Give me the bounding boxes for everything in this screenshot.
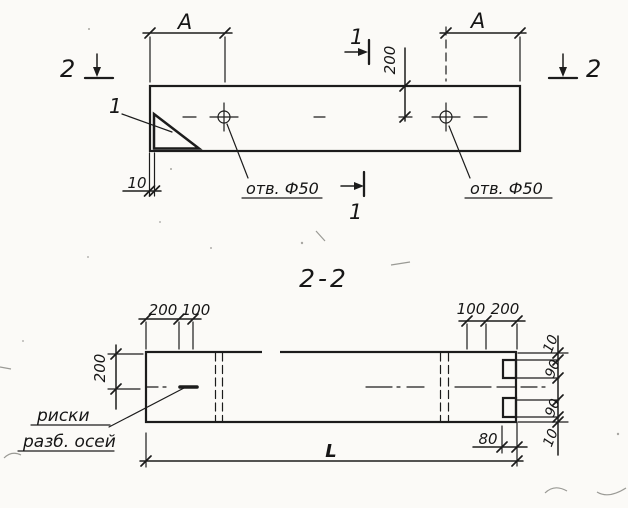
paper-speck [617,433,619,435]
dim-a-left: A [143,10,232,82]
dim-top-left-200-label: 200 [149,301,178,319]
section-mark-1-top: 1 [345,25,369,64]
paper-speck [159,221,161,223]
paper-speck [301,242,303,244]
dim-top-right-200-label: 200 [491,300,520,318]
paper-speck [170,168,172,170]
paper-speck [22,340,24,342]
section-2-right-label: 2 [586,55,601,83]
dim-top-left: 200 100 [139,301,210,349]
section-arrow-head [559,67,567,77]
hole-note-left-label: отв. Ф50 [246,179,319,198]
section-mark-2-right: 2 [549,54,601,83]
plan-view: 1 A A [60,9,601,224]
plan-beam-outline [150,86,520,151]
dim-length-label: L [325,441,336,462]
notch-top [503,360,516,378]
section-view: 2-2 200 200 100 [18,264,568,467]
axis-note-line2: разб. осей [22,432,116,452]
dim-80-label: 80 [478,430,497,448]
corner-triangle-detail [154,114,199,149]
section-arrow-head [93,67,101,77]
scan-line-gap [262,349,280,354]
stray-mark [545,488,567,493]
detail-mark-label: 1 [109,94,122,118]
dim-a-right: A [440,9,526,81]
stray-mark [0,367,11,369]
dim-a-right-label: A [469,9,485,33]
section-arrow-head [358,48,368,56]
hole-note-right-label: отв. Ф50 [470,179,543,198]
axis-note: риски разб. осей [18,388,184,452]
detail-mark-group: 1 [109,94,172,132]
dim-200-plan: 200 [381,46,410,122]
stray-mark [4,453,21,458]
dim-10-label: 10 [127,174,146,192]
dim-200-label: 200 [381,46,399,75]
paper-speck [210,247,212,249]
technical-drawing: 1 A A [0,0,628,508]
hole-note-right: отв. Ф50 [449,126,552,198]
dim-80: 80 [473,426,527,453]
dim-10-plan: 10 [123,153,161,196]
dim-chain-right: 10 90 90 10 [517,333,568,455]
dim-left-200: 200 [91,345,143,409]
chain-90a-label: 90 [542,358,564,381]
section-title: 2-2 [299,264,349,293]
stray-mark [316,231,325,241]
section-arrow-head [354,182,364,190]
section-2-left-label: 2 [60,55,75,83]
section-1-bottom-label: 1 [349,200,362,224]
dim-top-right-100-label: 100 [457,300,486,318]
dim-length: L [140,423,523,467]
dim-top-right: 100 200 [457,300,525,349]
paper-speck [87,256,89,258]
hole-note-left: отв. Ф50 [227,124,322,198]
drawing-sheet: 1 A A [0,0,628,508]
paper-speck [88,28,90,30]
notch-bottom [503,398,516,417]
section-1-top-label: 1 [350,25,363,49]
dim-left-200-label: 200 [91,354,109,383]
stray-mark [597,488,626,495]
section-mark-2-left: 2 [60,54,113,83]
dim-a-left-label: A [176,10,192,34]
stray-mark [391,262,410,265]
section-mark-1-bottom: 1 [341,172,364,224]
axis-note-line1: риски [36,406,90,426]
dim-top-left-100-label: 100 [182,301,211,319]
